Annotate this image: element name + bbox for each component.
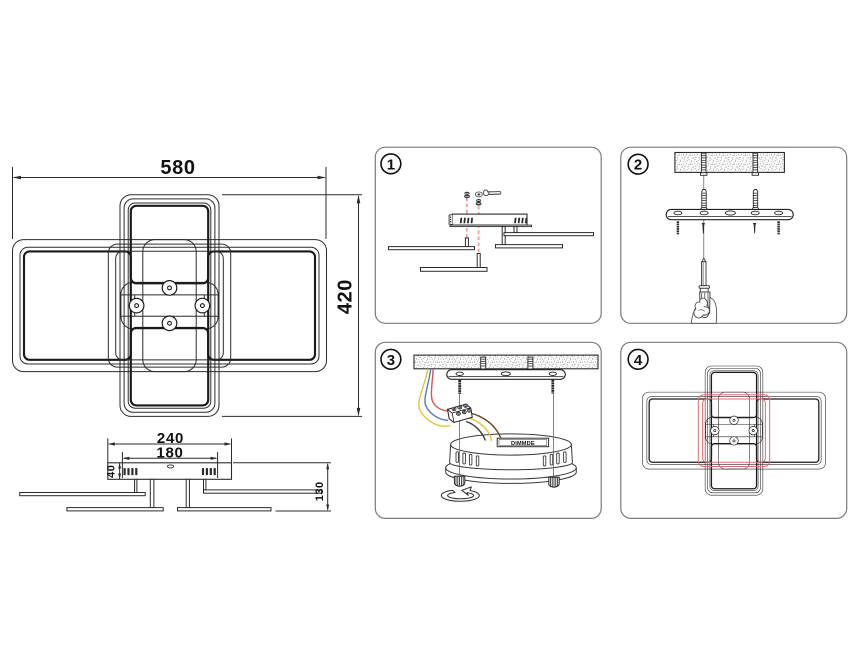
- svg-text:3: 3: [387, 352, 395, 369]
- svg-text:2: 2: [634, 157, 642, 174]
- svg-text:180: 180: [156, 444, 183, 461]
- svg-text:1: 1: [387, 156, 395, 173]
- svg-text:4: 4: [634, 352, 643, 369]
- svg-text:DIMMDE: DIMMDE: [511, 441, 535, 447]
- svg-text:420: 420: [335, 279, 357, 314]
- svg-text:130: 130: [314, 481, 326, 501]
- svg-text:580: 580: [160, 157, 195, 179]
- svg-text:40: 40: [106, 465, 118, 478]
